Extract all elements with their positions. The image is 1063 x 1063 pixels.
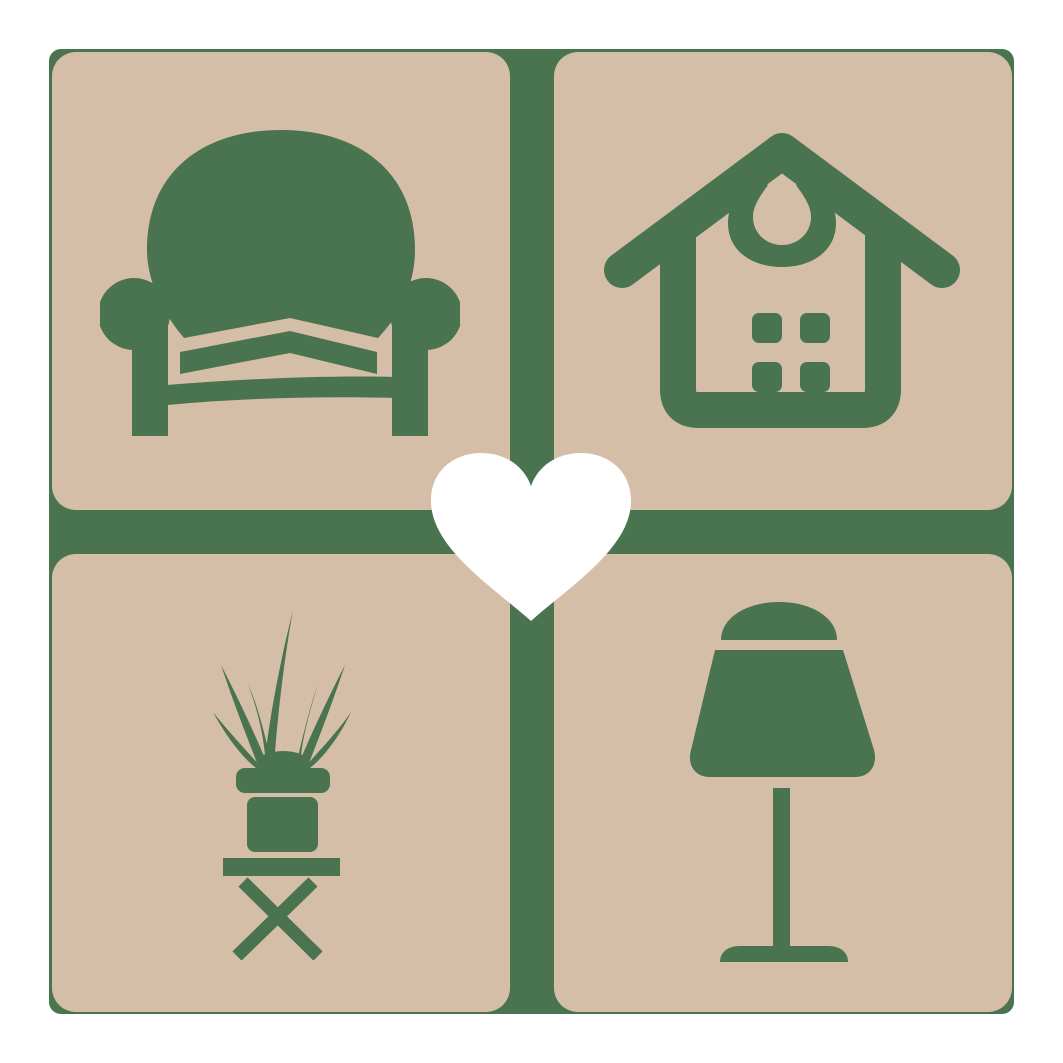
table-lamp-icon bbox=[688, 600, 878, 965]
armchair-icon bbox=[100, 128, 460, 438]
house-icon bbox=[600, 125, 965, 440]
tile-armchair bbox=[52, 52, 510, 510]
tile-house bbox=[554, 52, 1012, 510]
logo-canvas bbox=[0, 0, 1063, 1063]
tile-potted-plant bbox=[52, 554, 510, 1012]
potted-plant-icon bbox=[212, 608, 352, 960]
heart-icon bbox=[423, 446, 639, 622]
tile-table-lamp bbox=[554, 554, 1012, 1012]
